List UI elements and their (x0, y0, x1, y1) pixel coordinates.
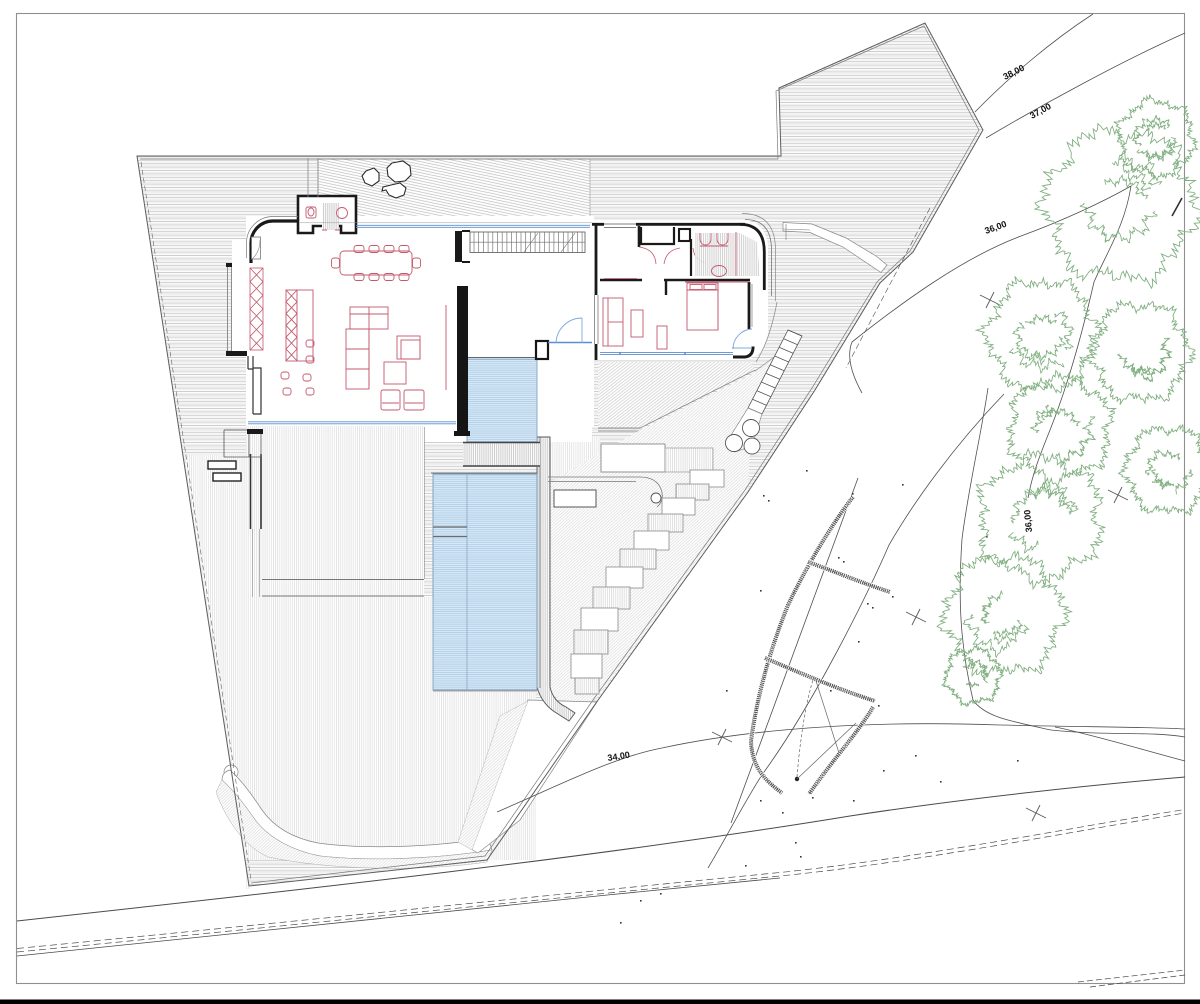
svg-text:36,00: 36,00 (1022, 509, 1034, 532)
